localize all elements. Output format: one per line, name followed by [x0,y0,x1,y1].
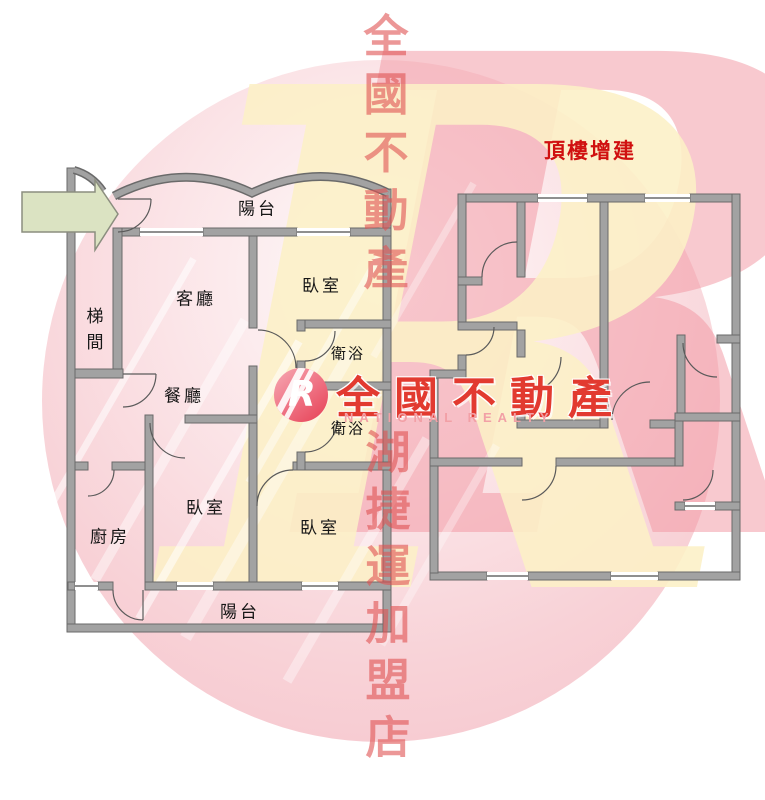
floorplan-page: R R [0,0,765,800]
national-realty-logo: R 全國不動產 NATIONAL REALTY [274,366,654,426]
room-label-bathroom-upper: 衛浴 [331,343,365,364]
room-label-stairwell: 梯間 [84,304,106,356]
rooftop-addition-title: 頂樓增建 [544,135,636,165]
watermark-text-bottom: 湖捷運加盟店 [363,424,413,766]
room-label-bedroom-center: 臥室 [186,494,226,519]
room-label-kitchen: 廚房 [90,523,130,548]
watermark-text-top: 全國不動產 [361,8,411,298]
room-label-bedroom-right: 臥室 [300,514,340,539]
room-label-dining-room: 餐廳 [164,382,204,407]
room-label-bedroom-top: 臥室 [302,272,342,297]
logo-badge-letter: R [288,374,316,415]
logo-r-badge-icon: R [274,368,328,422]
room-label-living-room: 客廳 [176,285,216,310]
room-label-balcony-top: 陽台 [238,195,278,220]
logo-brand-en: NATIONAL REALTY [344,410,555,425]
room-label-balcony-bottom: 陽台 [220,598,260,623]
